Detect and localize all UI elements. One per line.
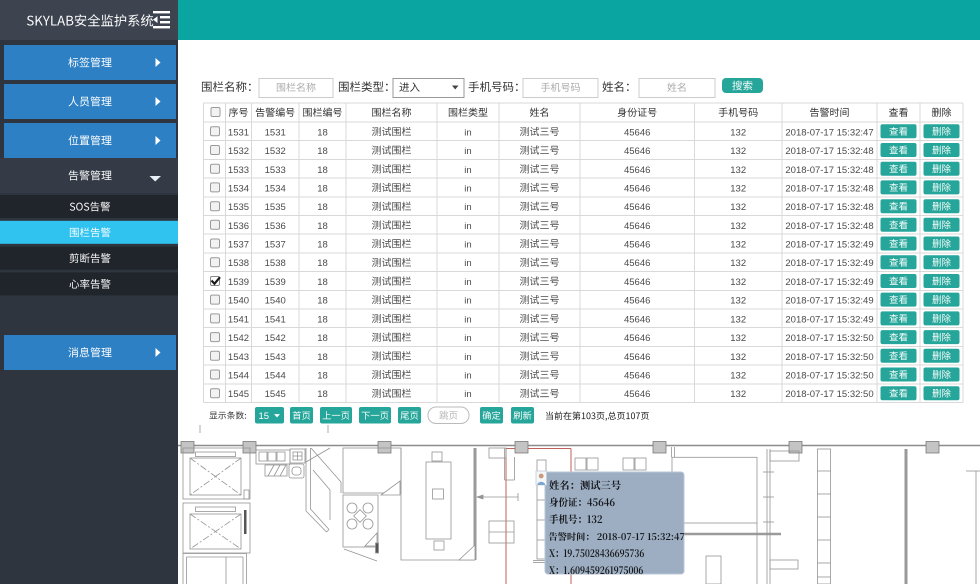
svg-text:1538: 1538 [228, 258, 249, 269]
svg-text:2018-07-17 15:32:49: 2018-07-17 15:32:49 [785, 314, 873, 325]
svg-text:in: in [464, 258, 471, 269]
svg-text:18: 18 [317, 258, 328, 269]
svg-text:18: 18 [317, 314, 328, 325]
svg-text:in: in [464, 183, 471, 194]
svg-text:1533: 1533 [265, 165, 286, 176]
svg-text:2018-07-17 15:32:49: 2018-07-17 15:32:49 [785, 240, 873, 251]
svg-text:2018-07-17 15:32:49: 2018-07-17 15:32:49 [785, 258, 873, 269]
svg-text:18: 18 [317, 183, 328, 194]
svg-text:1544: 1544 [228, 371, 249, 382]
svg-text:1531: 1531 [228, 127, 249, 138]
svg-text:2018-07-17 15:32:50: 2018-07-17 15:32:50 [785, 352, 873, 363]
svg-text:18: 18 [317, 146, 328, 157]
svg-text:1542: 1542 [265, 333, 286, 344]
svg-text:45646: 45646 [624, 333, 650, 344]
svg-text:132: 132 [730, 183, 746, 194]
svg-text:in: in [464, 296, 471, 307]
svg-text:132: 132 [730, 371, 746, 382]
svg-text:132: 132 [730, 333, 746, 344]
svg-text:1545: 1545 [228, 389, 249, 400]
svg-text:1532: 1532 [228, 146, 249, 157]
svg-text:132: 132 [730, 258, 746, 269]
svg-text:18: 18 [317, 371, 328, 382]
svg-text:in: in [464, 352, 471, 363]
svg-text:132: 132 [730, 389, 746, 400]
svg-text:45646: 45646 [624, 221, 650, 232]
svg-text:18: 18 [317, 127, 328, 138]
svg-text:45646: 45646 [624, 371, 650, 382]
svg-text:2018-07-17 15:32:48: 2018-07-17 15:32:48 [785, 221, 873, 232]
svg-text:1534: 1534 [228, 183, 249, 194]
svg-text:in: in [464, 165, 471, 176]
svg-text:1543: 1543 [265, 352, 286, 363]
svg-text:18: 18 [317, 202, 328, 213]
svg-text:132: 132 [730, 165, 746, 176]
svg-text:1543: 1543 [228, 352, 249, 363]
svg-text:in: in [464, 146, 471, 157]
svg-text:132: 132 [730, 221, 746, 232]
svg-text:18: 18 [317, 165, 328, 176]
svg-text:in: in [464, 202, 471, 213]
svg-text:45646: 45646 [624, 240, 650, 251]
svg-text:132: 132 [730, 314, 746, 325]
svg-text:2018-07-17 15:32:49: 2018-07-17 15:32:49 [785, 277, 873, 288]
svg-text:1537: 1537 [265, 240, 286, 251]
svg-text:18: 18 [317, 240, 328, 251]
svg-text:1536: 1536 [265, 221, 286, 232]
svg-text:1544: 1544 [265, 371, 286, 382]
svg-text:18: 18 [317, 277, 328, 288]
svg-text:132: 132 [730, 277, 746, 288]
svg-text:132: 132 [730, 127, 746, 138]
svg-text:45646: 45646 [624, 258, 650, 269]
svg-text:2018-07-17 15:32:50: 2018-07-17 15:32:50 [785, 371, 873, 382]
svg-text:45646: 45646 [624, 277, 650, 288]
svg-text:1540: 1540 [228, 296, 249, 307]
svg-text:in: in [464, 277, 471, 288]
svg-text:132: 132 [730, 296, 746, 307]
svg-text:45646: 45646 [624, 183, 650, 194]
svg-text:in: in [464, 221, 471, 232]
svg-text:2018-07-17 15:32:48: 2018-07-17 15:32:48 [785, 146, 873, 157]
svg-text:45646: 45646 [624, 389, 650, 400]
svg-text:132: 132 [730, 146, 746, 157]
svg-text:1540: 1540 [265, 296, 286, 307]
svg-text:2018-07-17 15:32:48: 2018-07-17 15:32:48 [785, 202, 873, 213]
svg-text:1537: 1537 [228, 240, 249, 251]
svg-text:18: 18 [317, 352, 328, 363]
svg-text:1533: 1533 [228, 165, 249, 176]
svg-text:1541: 1541 [228, 314, 249, 325]
svg-text:18: 18 [317, 296, 328, 307]
svg-text:1532: 1532 [265, 146, 286, 157]
svg-text:2018-07-17 15:32:50: 2018-07-17 15:32:50 [785, 389, 873, 400]
svg-text:1539: 1539 [228, 277, 249, 288]
svg-text:1539: 1539 [265, 277, 286, 288]
svg-text:in: in [464, 333, 471, 344]
svg-text:2018-07-17 15:32:47: 2018-07-17 15:32:47 [785, 127, 873, 138]
svg-text:in: in [464, 240, 471, 251]
svg-text:2018-07-17 15:32:50: 2018-07-17 15:32:50 [785, 333, 873, 344]
svg-text:1538: 1538 [265, 258, 286, 269]
svg-text:1536: 1536 [228, 221, 249, 232]
svg-text:1531: 1531 [265, 127, 286, 138]
svg-text:1534: 1534 [265, 183, 286, 194]
svg-text:2018-07-17 15:32:49: 2018-07-17 15:32:49 [785, 296, 873, 307]
svg-text:18: 18 [317, 221, 328, 232]
svg-text:45646: 45646 [624, 352, 650, 363]
svg-text:132: 132 [730, 240, 746, 251]
svg-text:18: 18 [317, 389, 328, 400]
svg-text:2018-07-17 15:32:48: 2018-07-17 15:32:48 [785, 183, 873, 194]
svg-text:45646: 45646 [624, 127, 650, 138]
svg-text:1542: 1542 [228, 333, 249, 344]
svg-text:45646: 45646 [624, 146, 650, 157]
svg-text:45646: 45646 [624, 202, 650, 213]
svg-text:132: 132 [730, 352, 746, 363]
svg-text:15: 15 [259, 411, 270, 422]
svg-text:in: in [464, 389, 471, 400]
svg-text:45646: 45646 [624, 314, 650, 325]
svg-text:132: 132 [730, 202, 746, 213]
svg-text:45646: 45646 [624, 296, 650, 307]
svg-text:in: in [464, 127, 471, 138]
svg-text:45646: 45646 [624, 165, 650, 176]
svg-text:18: 18 [317, 333, 328, 344]
svg-text:1535: 1535 [228, 202, 249, 213]
svg-text:1545: 1545 [265, 389, 286, 400]
svg-text:1541: 1541 [265, 314, 286, 325]
svg-text:in: in [464, 314, 471, 325]
svg-text:2018-07-17 15:32:48: 2018-07-17 15:32:48 [785, 165, 873, 176]
svg-text:1535: 1535 [265, 202, 286, 213]
svg-text:in: in [464, 371, 471, 382]
